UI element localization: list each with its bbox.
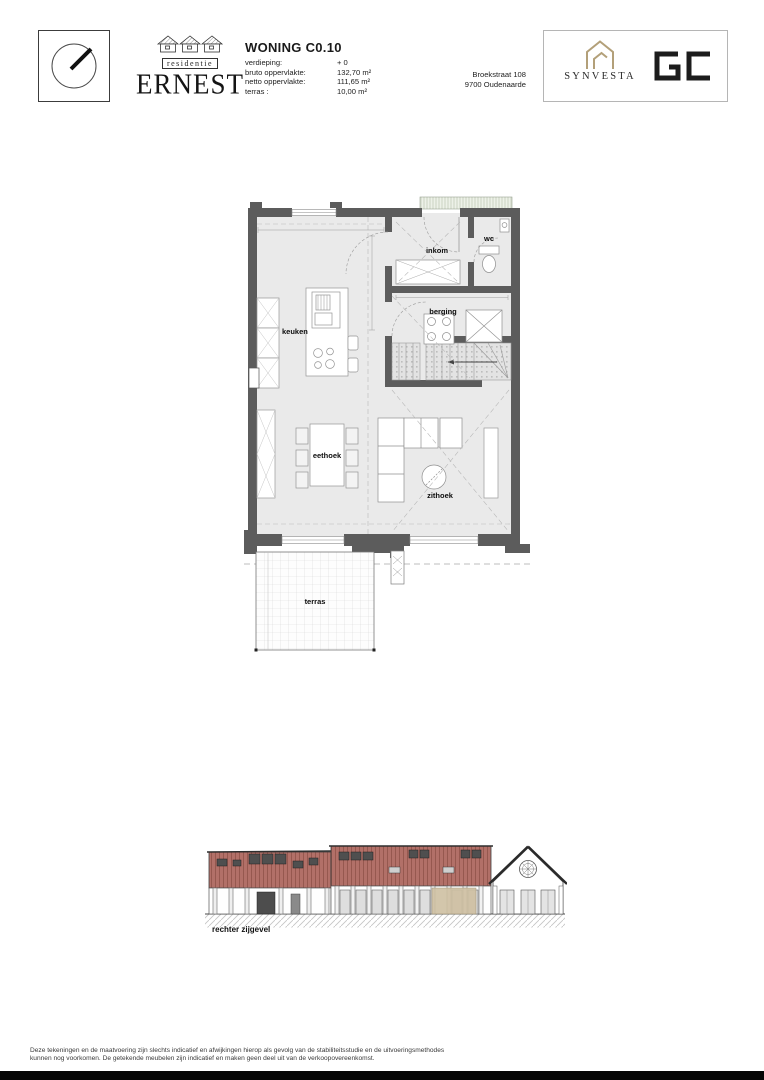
staircase	[392, 343, 511, 380]
right-facade-elevation	[203, 842, 567, 930]
synvesta-logo: SYNVESTA	[560, 38, 640, 82]
spec-row: verdieping: + 0	[245, 58, 425, 68]
room-label-zithoek: zithoek	[427, 491, 454, 500]
disclaimer: Deze tekeningen en de maatvoering zijn s…	[30, 1047, 690, 1063]
plan-sheet: { "header": { "logo": { "band": "residen…	[0, 0, 764, 1080]
north-compass-icon	[39, 31, 109, 101]
facade-gable-block	[489, 847, 567, 915]
elevation-drawing	[203, 842, 567, 930]
bottom-bar	[0, 1071, 764, 1080]
facade-middle-block	[329, 846, 493, 914]
address-line2: 9700 Oudenaarde	[396, 80, 526, 90]
ernest-wordmark: ERNEST	[136, 70, 244, 98]
address-line1: Broekstraat 108	[396, 70, 526, 80]
facade-left-block	[207, 851, 333, 914]
ernest-houses-icon	[157, 34, 223, 53]
elevation-caption: rechter zijgevel	[212, 925, 270, 934]
room-label-terras: terras	[305, 597, 326, 606]
disclaimer-line1: Deze tekeningen en de maatvoering zijn s…	[30, 1047, 690, 1055]
north-compass-box	[38, 30, 110, 102]
entrance-canopy	[420, 197, 512, 209]
unit-highlight	[432, 888, 476, 914]
unit-title: WONING C0.10	[245, 40, 342, 55]
floor-plan: keuken inkom wc berging eethoek zithoek …	[244, 196, 530, 666]
project-address: Broekstraat 108 9700 Oudenaarde	[396, 70, 526, 90]
gc-monogram-icon	[652, 50, 714, 82]
synvesta-wordmark: SYNVESTA	[560, 71, 640, 82]
synvesta-house-icon	[580, 38, 620, 70]
column-detail	[391, 551, 404, 584]
room-label-inkom: inkom	[426, 246, 448, 255]
room-label-wc: wc	[483, 234, 494, 243]
room-label-keuken: keuken	[282, 327, 308, 336]
entry-closet	[396, 260, 460, 284]
room-label-eethoek: eethoek	[313, 451, 342, 460]
gc-logo	[652, 50, 714, 87]
room-label-berging: berging	[429, 307, 457, 316]
floor-plan-drawing: keuken inkom wc berging eethoek zithoek …	[244, 196, 530, 666]
disclaimer-line2: kunnen nog voorkomen. De getekende meube…	[30, 1055, 690, 1063]
ernest-logo: residentie ERNEST	[136, 34, 244, 98]
